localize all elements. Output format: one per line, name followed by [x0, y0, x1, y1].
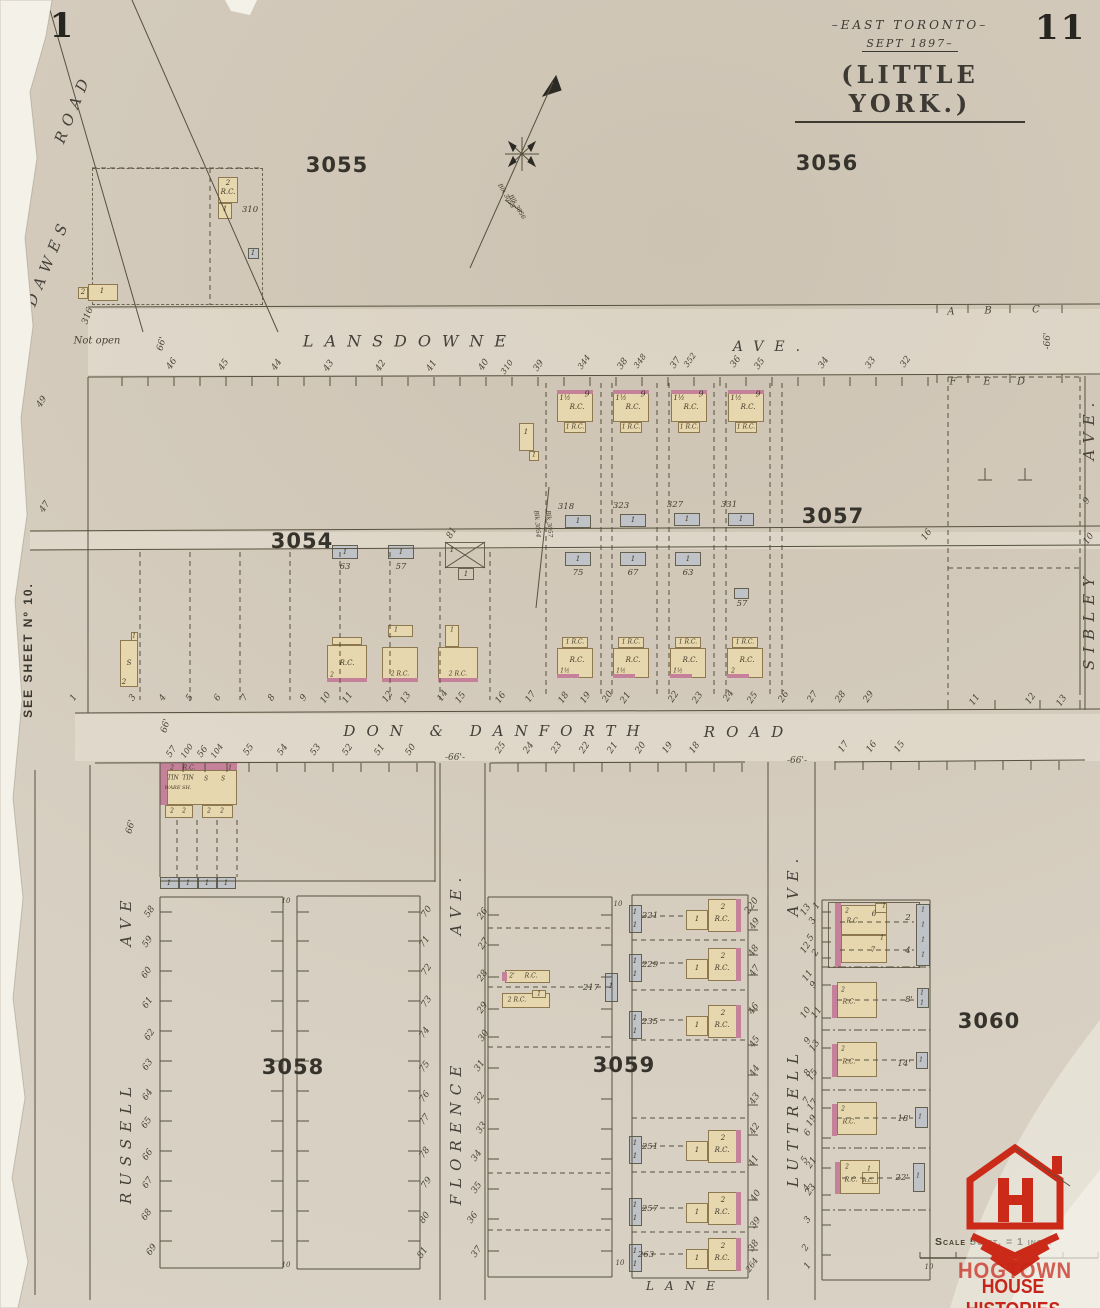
lot-number: 16 [920, 527, 935, 542]
building-label: 1 [631, 516, 635, 524]
lot-number: 66' [159, 718, 172, 734]
building-label: R.C. [715, 1146, 730, 1154]
building-label: 1 [532, 452, 536, 459]
street-name: AVE [117, 894, 135, 947]
building-label: 1 [921, 937, 925, 944]
lot-number: 23 [691, 690, 706, 705]
lot-number: 2 [800, 1243, 811, 1253]
lot-number: 28 [834, 689, 849, 704]
lot-number: 8 [266, 693, 277, 703]
building-label: S [204, 776, 208, 783]
building-label: 1 [399, 548, 403, 556]
lot-number: 69 [145, 1242, 160, 1257]
building-label: 2 [721, 1009, 725, 1017]
lot-number: 26 [476, 906, 491, 921]
lot-number: 66' [155, 336, 168, 352]
street-name: AVE. [784, 852, 802, 917]
street-name: FLORENCE [447, 1059, 465, 1205]
lot-number: 24 [722, 688, 737, 703]
lot-number: 1 [68, 693, 79, 703]
building-label: 1 [686, 555, 690, 563]
building-label: 2 [170, 808, 174, 815]
lot-number: 63 [141, 1057, 156, 1072]
lot-number: 18 [557, 690, 572, 705]
building-label: 1 [633, 1260, 637, 1268]
lot-number: 1 [802, 1261, 813, 1271]
lot-number: 35 [753, 356, 768, 371]
lot-number: 41 [425, 358, 440, 373]
house-number: 8' [905, 995, 913, 1005]
building-label: R.C. [843, 1119, 856, 1126]
building-label: 2 [226, 179, 230, 187]
building-label: R.C. [843, 999, 856, 1006]
lot-number: 14 [436, 688, 451, 703]
house-number: 2 [905, 913, 910, 923]
lot-number: 71 [418, 934, 433, 949]
watermark-name-bottom: HOUSE HISTORIES [966, 1276, 1061, 1308]
building-label: R.C. [847, 918, 860, 925]
building-label: 1 R.C. [622, 639, 640, 646]
street-name: AVE. [447, 871, 465, 936]
building-label: 1 [224, 879, 228, 887]
building-label: 1 R.C. [566, 639, 584, 646]
building-label: 2 [841, 1046, 845, 1053]
building-label: WARE SH. [165, 785, 192, 791]
building-label: 1 [576, 555, 580, 563]
building-label: 1 [921, 907, 925, 914]
lot-number: 220 [743, 896, 761, 916]
house-number: 63 [683, 568, 694, 578]
lot-number: 4 [157, 693, 168, 703]
house-number: 18' [897, 1114, 910, 1124]
lot-letter: C [1032, 305, 1040, 316]
building-label: 9 [584, 390, 589, 399]
building-label: R.C. [715, 1254, 730, 1262]
building-label: 1½ [615, 394, 626, 402]
building-label: 1½ [730, 394, 741, 402]
lot-number: 12 [381, 689, 396, 704]
lot-number: 77 [418, 1112, 433, 1127]
house-number: 331 [721, 500, 737, 510]
building-label: 2' [509, 973, 514, 980]
lot-number: 81 [445, 526, 459, 541]
lot-number: 1 [811, 901, 822, 911]
lot-number: 12 [1024, 691, 1039, 706]
title-main: (LITTLE YORK.) [795, 60, 1025, 123]
lot-number: -66' [1043, 333, 1053, 350]
block-number: 3060 [958, 1009, 1020, 1033]
lot-number: 41 [747, 1153, 762, 1168]
lot-number: 18 [688, 740, 703, 755]
lot-number: 55 [242, 742, 257, 757]
watermark: HOGTOWN HOUSE HISTORIES [930, 1140, 1100, 1304]
lot-number: 80 [418, 1210, 433, 1225]
building-label: R.C. [340, 659, 355, 667]
lot-number: 27 [806, 689, 821, 704]
lot-number: 62 [143, 1027, 158, 1042]
lot-number: 17 [524, 689, 539, 704]
block-number: 3055 [306, 153, 368, 177]
building-label: R.C. [626, 403, 641, 411]
house-number: 235 [642, 1017, 658, 1027]
lot-number: 78 [418, 1145, 433, 1160]
lot-number: 19 [661, 740, 676, 755]
building-label: Blk 3057 [544, 510, 553, 538]
building-label: 1 [633, 1139, 637, 1147]
building-label: R.C. [715, 1208, 730, 1216]
street-name: ROAD [704, 723, 794, 741]
lot-number: 3 [807, 916, 818, 926]
lot-number: 49 [748, 916, 763, 931]
lot-number: 70 [420, 904, 435, 919]
building-label: 1 R.C. [679, 639, 697, 646]
lot-number: 44 [270, 357, 285, 372]
house-number: 22' [895, 1173, 908, 1183]
lot-number: 15 [893, 739, 908, 754]
lot-number: 16 [494, 690, 509, 705]
lot-number: 75 [418, 1059, 433, 1074]
lot-number: 11 [810, 1005, 825, 1020]
building-label: 2 [721, 903, 725, 911]
building-label: 2 [81, 288, 85, 296]
building-label: 1½ [616, 668, 626, 675]
lot-number: 47 [748, 963, 763, 978]
lot-number: 66' [124, 819, 137, 835]
house-number: 221 [642, 911, 658, 921]
lot-number: 21 [606, 740, 621, 755]
building-label: 1 [633, 970, 637, 978]
building-label: 1 [921, 922, 925, 929]
building-label: 1 [695, 964, 699, 972]
house-number: 57 [396, 562, 407, 572]
house-number: 257 [642, 1204, 658, 1214]
lot-number: 45 [748, 1034, 763, 1049]
building-label: 2 [845, 908, 849, 915]
building-label: R.C. [715, 915, 730, 923]
lot-number: 53 [309, 742, 324, 757]
building-label: 1 [695, 1254, 699, 1262]
lot-number: 348 [632, 352, 648, 370]
building-label: 1 [450, 546, 454, 554]
block-number: 3056 [796, 151, 858, 175]
building-label: 2 [721, 952, 725, 960]
lot-number: 38 [747, 1238, 762, 1253]
building-label: TIN [182, 775, 194, 782]
lot-number: 10 [614, 900, 623, 908]
building-label: 1 R.C. [737, 424, 755, 431]
lot-number: 30 [477, 1028, 492, 1043]
lot-number: 73 [420, 994, 435, 1009]
building-label: 2 R.C. [449, 671, 467, 678]
street-name: AVE. [733, 339, 811, 355]
house-number: 263 [638, 1250, 654, 1260]
lot-number: 49 [35, 394, 50, 409]
see-sheet-note: SEE SHEET Nº 10. [21, 582, 35, 718]
lot-number: 25 [746, 690, 761, 705]
building-label: 1 [633, 1027, 637, 1035]
lot-number: 43 [322, 358, 337, 373]
building-label: 1 [251, 249, 255, 257]
building-label: 1 [918, 1114, 922, 1121]
lot-number: 20 [601, 689, 616, 704]
lot-number: 74 [418, 1025, 433, 1040]
building-label: R.C. [715, 1021, 730, 1029]
lot-number: 10 [1082, 531, 1097, 546]
building-label: R.C. [741, 403, 756, 411]
building-label: 1 [920, 1000, 924, 1007]
lot-number: 50 [404, 742, 419, 757]
building-label: 1½ [560, 668, 570, 675]
lot-number: 5 [184, 693, 195, 703]
house-number: 217 [583, 983, 599, 993]
building-label: 1 [633, 1247, 637, 1255]
lot-number: 22 [667, 689, 682, 704]
lot-number: 10 [616, 1259, 625, 1267]
house-number: 75 [573, 568, 584, 578]
building-label: 1 [633, 1214, 637, 1222]
building-label: 2 [731, 668, 735, 675]
building-label: 1 [695, 1208, 699, 1216]
building-label: 1 [633, 921, 637, 929]
building-label: 2 [841, 1106, 845, 1113]
building-label: 1 [167, 879, 171, 887]
lot-number: 34 [470, 1148, 485, 1163]
lot-number: 48 [747, 943, 762, 958]
lot-number: -66'- [787, 756, 807, 766]
lot-number: 46 [11, 523, 26, 538]
building-label: 1½ [673, 668, 683, 675]
building-label: 1½ [673, 394, 684, 402]
lot-number: 15 [454, 690, 469, 705]
building-label: R.C. [740, 656, 755, 664]
building-label: 1 [576, 517, 580, 525]
building-label: R.C. [843, 1059, 856, 1066]
building-label: 2 R.C. [391, 671, 409, 678]
building-label: 2 [170, 765, 174, 772]
building-label: S [127, 659, 132, 667]
street-name: LANSDOWNE [303, 332, 517, 351]
building-label: 1 [450, 627, 454, 634]
lot-number: 33 [864, 355, 879, 370]
street-name: DON & DANFORTH [343, 722, 650, 740]
building-label: 1 [631, 555, 635, 563]
lot-number: 13 [399, 690, 414, 705]
lot-number: 32 [473, 1090, 488, 1105]
sheet-number-left: 11 [24, 6, 75, 46]
lot-number: 68 [140, 1207, 155, 1222]
lot-number: 20 [634, 740, 649, 755]
block-number: 3059 [593, 1053, 655, 1077]
lot-number: 54 [276, 742, 291, 757]
street-name: DAWES [22, 215, 74, 309]
lot-number: 45 [217, 357, 232, 372]
building-label: 1 [882, 903, 886, 910]
house-number: 310 [242, 205, 258, 215]
building-label: R.C. [863, 1178, 874, 1184]
lot-number: 33 [475, 1120, 490, 1135]
building-label: 1 R.C. [566, 424, 584, 431]
building-label: 2 [122, 678, 126, 686]
building-label: 1 [609, 982, 613, 990]
lot-letter: D [1017, 377, 1025, 388]
house-number: 14' [897, 1059, 910, 1069]
building-label: 1 [695, 915, 699, 923]
lot-number: 43 [748, 1091, 763, 1106]
building-label: 1 [228, 765, 232, 772]
building-label: 1 R.C. [680, 424, 698, 431]
house-number: 4 [905, 946, 910, 956]
building-label: R.C. [570, 656, 585, 664]
lot-number: 39 [532, 358, 547, 373]
lot-number: 65 [140, 1115, 155, 1130]
lot-letter: B [984, 306, 991, 317]
street-name: ROAD [51, 70, 96, 146]
street-name: RUSSELL [117, 1080, 135, 1204]
building-label: 1 [537, 991, 541, 998]
building-label: 1 [394, 627, 398, 634]
lot-number: 31 [473, 1058, 488, 1073]
house-number: 251 [642, 1142, 658, 1152]
lot-number: 56 [196, 744, 211, 759]
lot-number: 100 [179, 742, 195, 760]
lot-number: 3 [802, 1215, 813, 1225]
building-label: 1 [633, 1152, 637, 1160]
lot-number: 2 [810, 948, 821, 958]
building-label: R.C. [221, 188, 236, 196]
lot-number: 67 [141, 1175, 156, 1190]
map-labels-layer: 3055305630543057305830593060LANSDOWNEAVE… [0, 0, 1100, 1308]
lot-number: 38 [616, 356, 631, 371]
lot-number: 26 [777, 689, 792, 704]
building-label: 1 [223, 205, 227, 213]
lot-number: 66 [141, 1147, 156, 1162]
building-label: 1 [695, 1021, 699, 1029]
lot-number: 13 [1055, 693, 1070, 708]
lot-number: 72 [420, 962, 435, 977]
lot-number: 10 [319, 690, 334, 705]
title-date: SEPT 1897– [862, 37, 957, 52]
building-label: 1 [880, 935, 884, 942]
building-label: R.C. [684, 403, 699, 411]
lot-number: 36 [729, 354, 744, 369]
lot-number: 310 [499, 358, 515, 376]
lot-number: 24 [522, 740, 537, 755]
building-label: 1 [867, 1166, 871, 1173]
building-label: 2 [182, 808, 186, 815]
building-label: 1 [186, 879, 190, 887]
lot-number: 17 [837, 739, 852, 754]
building-label: 1 [132, 633, 136, 640]
lot-number: 34 [817, 355, 832, 370]
title-subline: –EAST TORONTO– [795, 18, 1025, 32]
building-label: R.C. [183, 765, 196, 772]
lot-number: 42 [748, 1121, 763, 1136]
lot-letter: A [947, 307, 954, 318]
lot-number: 61 [141, 995, 156, 1010]
lot-number: 29 [476, 1000, 491, 1015]
building-label: 1 R.C. [622, 424, 640, 431]
lot-number: 37 [470, 1244, 485, 1259]
building-label: 7 [871, 946, 875, 954]
lot-number: 344 [576, 353, 592, 371]
lot-number: 9 [1081, 496, 1092, 506]
lot-number: 19 [579, 690, 594, 705]
lot-number: 35 [470, 1180, 485, 1195]
building-label: 2 [330, 672, 334, 679]
lot-number: 44 [748, 1063, 763, 1078]
building-label: TIN [167, 775, 179, 782]
building-label: 1 R.C. [736, 639, 754, 646]
building-label: 2 [220, 808, 224, 815]
not-open-note: Not open [74, 336, 121, 347]
house-number: 63 [340, 562, 351, 572]
lot-number: 60 [140, 965, 155, 980]
lot-letter: F [950, 377, 957, 388]
lot-letter: E [983, 377, 990, 388]
lot-number: 47 [38, 499, 53, 514]
lot-number: 16 [865, 739, 880, 754]
lot-number: 28 [476, 968, 491, 983]
building-label: R.C. [683, 656, 698, 664]
lot-number: 59 [141, 934, 156, 949]
house-number: 327 [667, 500, 683, 510]
house-number: 323 [613, 501, 629, 511]
building-label: 1 [919, 1057, 923, 1064]
building-label: 1 [685, 515, 689, 523]
lot-number: 46 [165, 356, 180, 371]
lot-number: 46 [747, 1001, 762, 1016]
street-name: LANE [646, 1279, 726, 1293]
lot-number: 3 [127, 693, 138, 703]
building-label: R.C. [570, 403, 585, 411]
lot-number: 10 [282, 897, 291, 905]
lot-number: 316 [80, 306, 95, 326]
street-name: SIBLEY [1080, 570, 1098, 670]
lot-number: -66'- [445, 753, 465, 763]
lot-number: 79 [420, 1175, 435, 1190]
building-label: 1 [739, 515, 743, 523]
building-label: 9 [698, 390, 703, 399]
building-label: 1 [633, 1014, 637, 1022]
building-label: 1 [916, 1173, 920, 1180]
building-label: 9 [755, 390, 760, 399]
lot-number: 58 [143, 904, 158, 919]
building-label: 2 [845, 1164, 849, 1171]
lot-number: 29 [862, 689, 877, 704]
house-number: 57 [737, 599, 748, 609]
building-label: 2 [721, 1196, 725, 1204]
building-label: 1 [921, 952, 925, 959]
lot-number: 6 [802, 1128, 813, 1138]
lot-number: 52 [341, 742, 356, 757]
building-label: 1 [633, 1201, 637, 1209]
building-label: 2 [841, 987, 845, 994]
lot-number: 11 [341, 690, 356, 705]
building-label: 1 [633, 957, 637, 965]
lot-number: 81 [416, 1245, 431, 1260]
building-label: 1½ [559, 394, 570, 402]
building-label: S [221, 776, 225, 783]
lot-number: 57 [165, 744, 180, 759]
lot-number: 42 [374, 358, 389, 373]
building-label: 9 [640, 390, 645, 399]
map-title-block: –EAST TORONTO– SEPT 1897– (LITTLE YORK.) [795, 18, 1025, 123]
lot-number: 264 [744, 1256, 760, 1274]
lot-number: 25 [494, 740, 509, 755]
building-label: 6 [872, 910, 876, 918]
street-name: AVE. [1080, 396, 1098, 461]
lot-number: 22 [578, 740, 593, 755]
